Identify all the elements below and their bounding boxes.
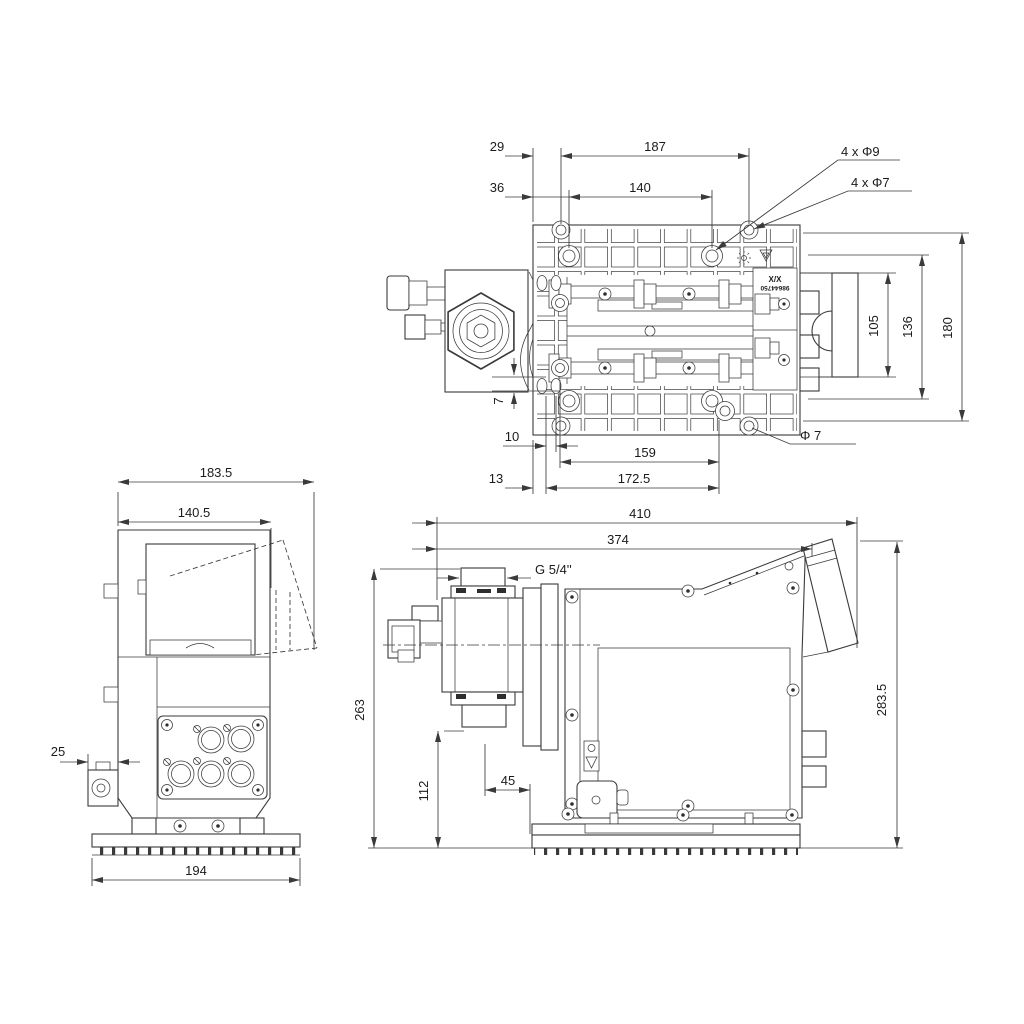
- dim-136: 136: [900, 316, 915, 338]
- dim-25: 25: [51, 744, 65, 759]
- dim-140: 140: [629, 180, 651, 195]
- part-number-label: 98644750: [760, 284, 789, 291]
- multifunction-valve: [388, 606, 442, 662]
- control-hood: [138, 544, 255, 655]
- dim-45: 45: [501, 773, 515, 788]
- dim-374: 374: [607, 532, 629, 547]
- variant-label: X/X: [769, 275, 783, 284]
- dim-phi7: Φ 7: [800, 428, 821, 443]
- dim-10: 10: [505, 429, 519, 444]
- cable-gland-icon: [387, 276, 409, 310]
- dim-105: 105: [866, 315, 881, 337]
- front-view: 410 374 G 5/4'' 263 112 45 283.5: [352, 506, 903, 855]
- dim-29: 29: [490, 139, 504, 154]
- dim-7: 7: [491, 397, 506, 404]
- side-knob-icon: [802, 731, 826, 757]
- control-cube: [803, 539, 858, 657]
- left-side-view: 183.5 140.5 25 194: [51, 465, 317, 886]
- warning-label-icon: [584, 741, 599, 771]
- base-plate-side: [92, 834, 300, 847]
- end-cap-assembly: [800, 273, 858, 391]
- dim-180: 180: [940, 317, 955, 339]
- dim-183-5: 183.5: [200, 465, 233, 480]
- dim-172-5: 172.5: [618, 471, 651, 486]
- dim-283-5: 283.5: [874, 684, 889, 717]
- drawing-page: X/X 98644750: [0, 0, 1024, 1024]
- dim-159: 159: [634, 445, 656, 460]
- dim-263: 263: [352, 699, 367, 721]
- knurled-knob-icon: [405, 315, 425, 339]
- dim-187: 187: [644, 139, 666, 154]
- dim-36: 36: [490, 180, 504, 195]
- wall-bracket: [88, 762, 118, 806]
- top-view: X/X 98644750: [387, 139, 969, 494]
- dim-410: 410: [629, 506, 651, 521]
- dim-194: 194: [185, 863, 207, 878]
- dim-4xphi9: 4 x Φ9: [841, 144, 880, 159]
- dim-g54: G 5/4'': [535, 562, 572, 577]
- dim-140-5: 140.5: [178, 505, 211, 520]
- dim-4xphi7: 4 x Φ7: [851, 175, 890, 190]
- dim-13: 13: [489, 471, 503, 486]
- connector-panel: [158, 716, 267, 799]
- side-knob-icon: [802, 766, 826, 787]
- dim-112: 112: [416, 781, 431, 802]
- nameplate-box: X/X 98644750: [753, 268, 797, 390]
- dosing-head-front: [442, 568, 523, 727]
- technical-drawing-canvas: X/X 98644750: [0, 0, 1024, 1024]
